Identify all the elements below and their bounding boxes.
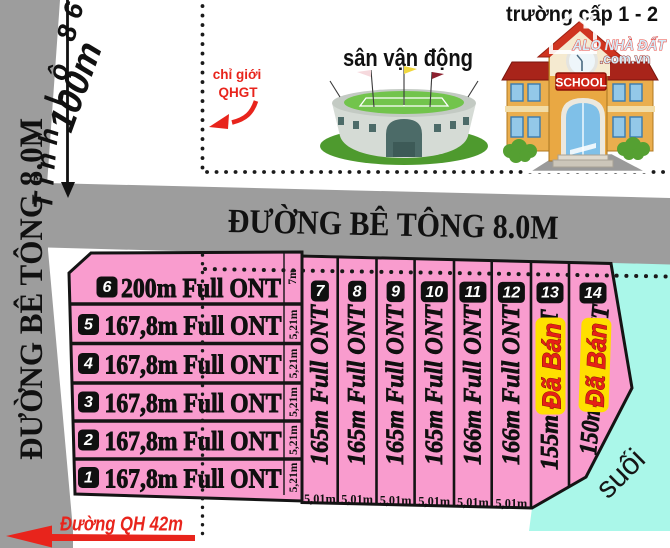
- svg-text:14: 14: [584, 285, 602, 302]
- svg-text:SCHOOL: SCHOOL: [555, 76, 606, 90]
- svg-text:5,01m: 5,01m: [418, 495, 451, 509]
- svg-text:5: 5: [84, 317, 94, 334]
- svg-text:5,01m: 5,01m: [457, 496, 490, 510]
- svg-text:5,01m: 5,01m: [341, 493, 374, 507]
- svg-text:166m Full ONT: 166m Full ONT: [459, 303, 486, 465]
- svg-text:5,01m: 5,01m: [496, 497, 529, 511]
- svg-text:5,21m: 5,21m: [288, 462, 300, 492]
- svg-text:9: 9: [391, 284, 400, 301]
- svg-text:165m Full ONT: 165m Full ONT: [306, 303, 333, 465]
- svg-text:167,8m Full ONT: 167,8m Full ONT: [105, 311, 282, 341]
- svg-text:5,21m: 5,21m: [288, 387, 300, 417]
- svg-text:165m Full ONT: 165m Full ONT: [382, 303, 409, 465]
- svg-text:5,21m: 5,21m: [288, 309, 300, 339]
- svg-text:10: 10: [425, 284, 443, 301]
- svg-text:6: 6: [103, 279, 112, 296]
- svg-text:5,21m: 5,21m: [288, 348, 300, 378]
- svg-text:5,01m: 5,01m: [304, 492, 337, 506]
- svg-text:5,21m: 5,21m: [288, 425, 300, 455]
- svg-text:QHGT: QHGT: [219, 85, 259, 100]
- svg-text:13: 13: [541, 285, 559, 302]
- svg-text:5,01m: 5,01m: [380, 494, 413, 508]
- svg-text:1: 1: [84, 470, 93, 487]
- svg-text:165m Full ONT: 165m Full ONT: [344, 303, 371, 465]
- svg-text:2: 2: [83, 432, 93, 449]
- svg-text:Đường QH 42m: Đường QH 42m: [60, 514, 183, 536]
- svg-text:4: 4: [83, 356, 93, 373]
- svg-text:167,8m Full ONT: 167,8m Full ONT: [105, 350, 282, 380]
- svg-text:3: 3: [84, 394, 93, 411]
- svg-text:7: 7: [315, 283, 325, 300]
- svg-text:165m Full ONT: 165m Full ONT: [421, 303, 448, 465]
- svg-text:167,8m Full ONT: 167,8m Full ONT: [105, 426, 282, 456]
- svg-text:chỉ giới: chỉ giới: [213, 67, 262, 82]
- svg-text:166m Full ONT: 166m Full ONT: [498, 303, 525, 465]
- svg-text:11: 11: [465, 284, 482, 301]
- svg-text:.com.vn: .com.vn: [599, 52, 650, 67]
- svg-text:Đã Bán: Đã Bán: [580, 323, 613, 408]
- svg-text:12: 12: [503, 284, 521, 301]
- svg-text:167,8m Full ONT: 167,8m Full ONT: [105, 388, 282, 418]
- svg-text:8: 8: [353, 283, 362, 300]
- svg-text:ĐƯỜNG BÊ TÔNG 8.0M: ĐƯỜNG BÊ TÔNG 8.0M: [227, 202, 559, 247]
- svg-text:167,8m Full ONT: 167,8m Full ONT: [105, 464, 282, 494]
- svg-text:Đã Bán: Đã Bán: [537, 323, 567, 409]
